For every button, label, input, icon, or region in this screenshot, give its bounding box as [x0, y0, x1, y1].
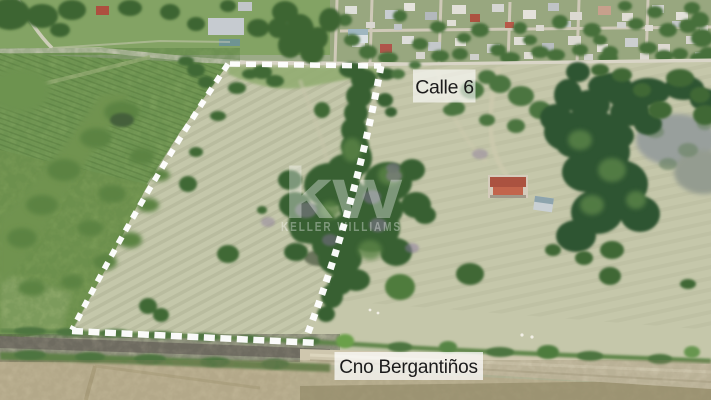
- svg-text:KELLER WILLIAMS: KELLER WILLIAMS: [281, 220, 402, 234]
- svg-text:Calle 6: Calle 6: [415, 77, 474, 99]
- svg-text:Cno Bergantiños: Cno Bergantiños: [339, 357, 478, 378]
